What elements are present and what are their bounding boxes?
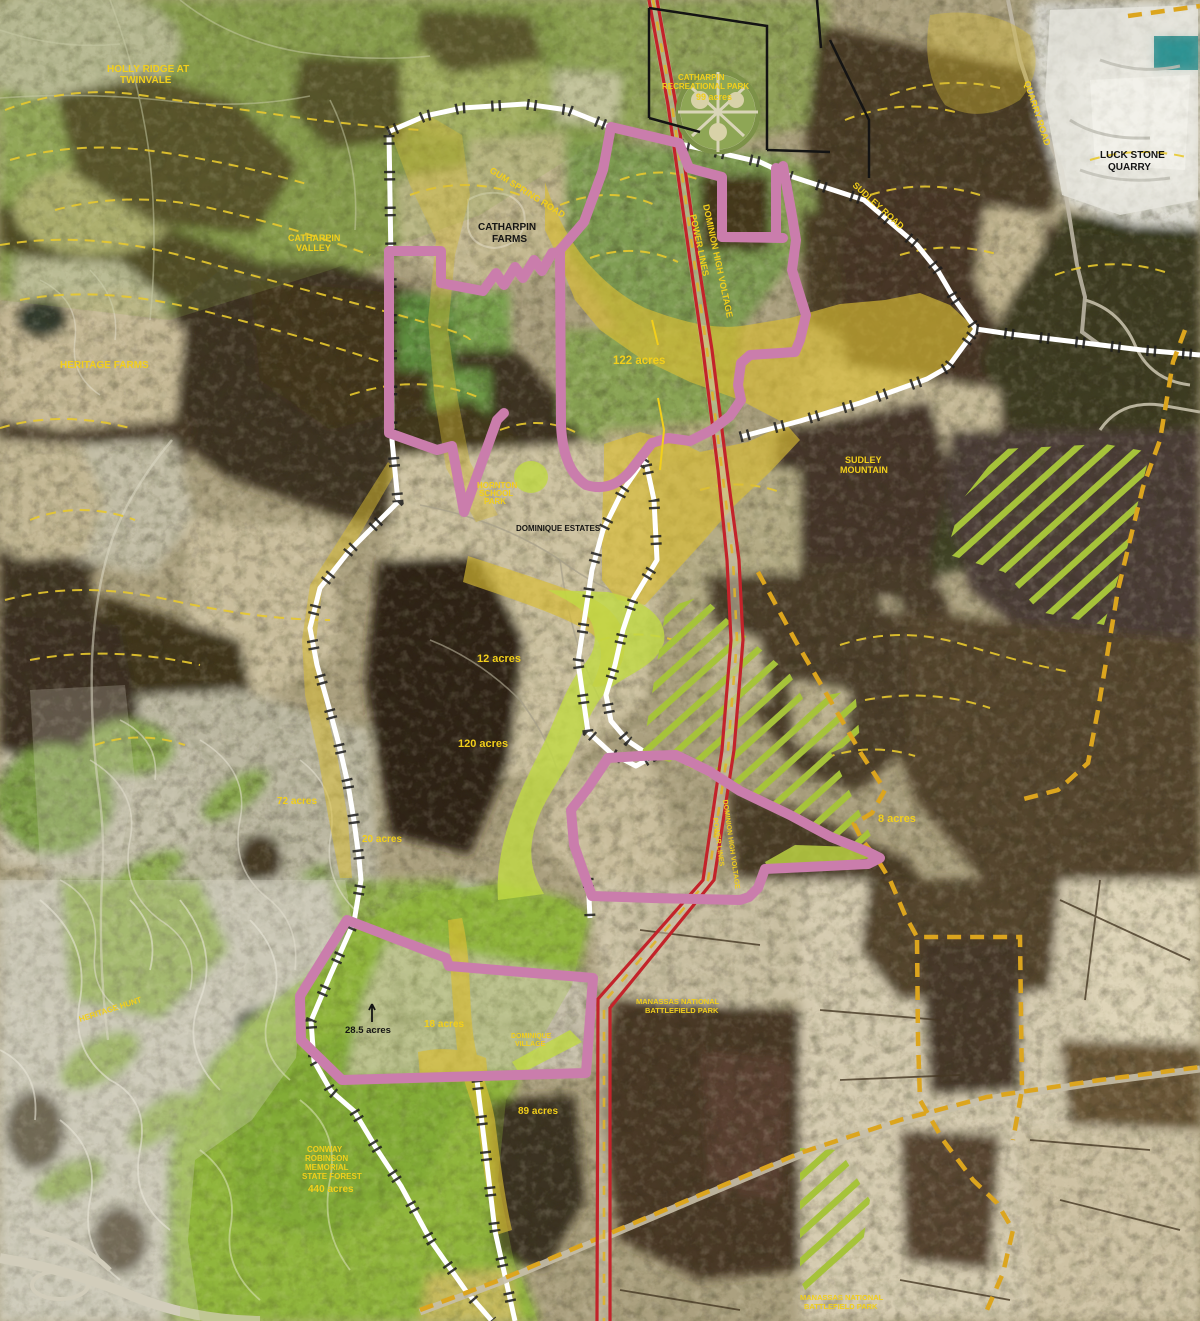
svg-text:VILLAGE: VILLAGE (515, 1041, 546, 1048)
svg-text:440 acres: 440 acres (308, 1184, 354, 1195)
svg-text:89 acres: 89 acres (518, 1106, 558, 1117)
svg-text:122 acres: 122 acres (613, 355, 665, 367)
svg-text:MEMORIAL: MEMORIAL (305, 1163, 349, 1172)
svg-text:18 acres: 18 acres (424, 1019, 464, 1030)
svg-text:28.5 acres: 28.5 acres (345, 1025, 391, 1036)
svg-text:RECREATIONAL PARK: RECREATIONAL PARK (662, 82, 749, 91)
svg-text:PARK: PARK (484, 497, 506, 506)
svg-text:120 acres: 120 acres (458, 738, 508, 750)
svg-text:VALLEY: VALLEY (296, 243, 331, 253)
svg-text:8 acres: 8 acres (878, 813, 916, 825)
svg-text:72 acres: 72 acres (277, 796, 317, 807)
svg-text:12 acres: 12 acres (477, 653, 521, 665)
svg-text:DOMINIQUE: DOMINIQUE (511, 1033, 552, 1040)
svg-text:LUCK STONE: LUCK STONE (1100, 150, 1165, 161)
svg-text:CONWAY: CONWAY (307, 1145, 343, 1154)
svg-text:HOLLY RIDGE AT: HOLLY RIDGE AT (107, 64, 189, 75)
svg-text:SUDLEY: SUDLEY (845, 455, 882, 465)
svg-text:STATE FOREST: STATE FOREST (302, 1172, 362, 1181)
svg-text:MANASSAS NATIONAL: MANASSAS NATIONAL (636, 997, 720, 1006)
svg-text:HERITAGE FARMS: HERITAGE FARMS (60, 360, 149, 371)
svg-text:MOUNTAIN: MOUNTAIN (840, 465, 888, 475)
svg-text:CATHARPIN: CATHARPIN (288, 233, 340, 243)
svg-text:99 acres: 99 acres (696, 92, 732, 102)
svg-text:BATTLEFIELD PARK: BATTLEFIELD PARK (645, 1006, 719, 1015)
svg-text:DOMINIQUE ESTATES: DOMINIQUE ESTATES (516, 524, 601, 533)
svg-text:QUARRY: QUARRY (1108, 162, 1151, 173)
svg-text:CATHARPIN: CATHARPIN (678, 73, 725, 82)
svg-text:MANASSAS NATIONAL: MANASSAS NATIONAL (800, 1293, 884, 1302)
svg-text:CATHARPIN: CATHARPIN (478, 222, 536, 233)
svg-text:BATTLEFIELD PARK: BATTLEFIELD PARK (804, 1302, 878, 1311)
svg-text:20 acres: 20 acres (362, 834, 402, 845)
svg-text:ROBINSON: ROBINSON (305, 1154, 348, 1163)
svg-text:FARMS: FARMS (492, 234, 527, 245)
svg-text:TWINVALE: TWINVALE (120, 75, 172, 86)
